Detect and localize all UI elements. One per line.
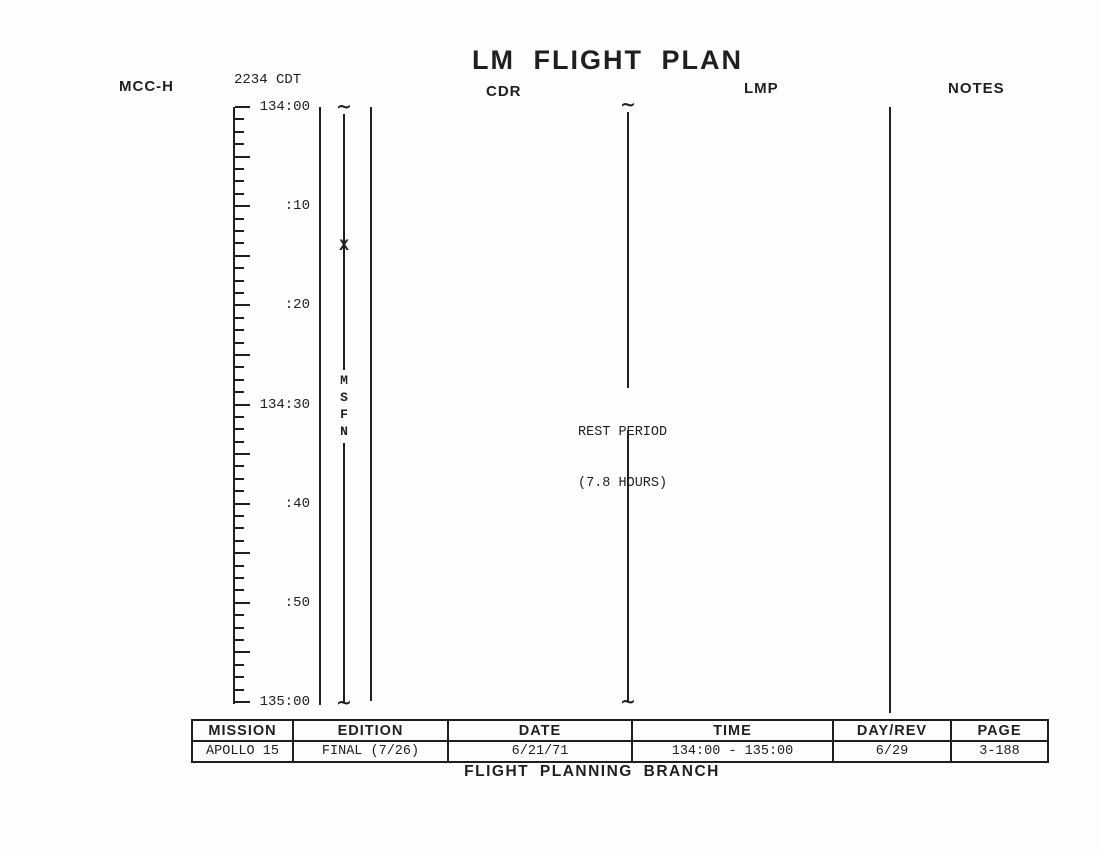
minor-tick <box>235 540 244 542</box>
column-header-notes: NOTES <box>948 80 1005 97</box>
minor-tick <box>235 180 244 182</box>
minor-tick <box>235 465 244 467</box>
time-scale-label: 134:30 <box>234 397 310 413</box>
line-break-squiggle: ~ <box>620 96 636 115</box>
footer-table-header-page: PAGE <box>951 720 1048 741</box>
minor-tick <box>235 627 244 629</box>
local-time-label: 2234 CDT <box>234 72 301 88</box>
minor-tick <box>235 218 244 220</box>
footer-table-value-dayrev: 6/29 <box>833 741 951 762</box>
line-break-squiggle: ~ <box>620 693 636 712</box>
minor-tick <box>235 391 244 393</box>
major-tick <box>235 255 250 257</box>
footer-table-value-edition: FINAL (7/26) <box>293 741 448 762</box>
msfn-coverage-line-lower <box>343 443 345 702</box>
minor-tick <box>235 168 244 170</box>
time-scale-label: :20 <box>234 297 310 313</box>
major-tick <box>235 552 250 554</box>
footer-table-header-date: DATE <box>448 720 632 741</box>
footer-table-header-row: MISSION EDITION DATE TIME DAY/REV PAGE <box>192 720 1048 741</box>
minor-tick <box>235 639 244 641</box>
msfn-column-right-line <box>370 107 372 701</box>
rest-period-duration: (7.8 HOURS) <box>578 475 667 492</box>
minor-tick <box>235 317 244 319</box>
major-tick <box>235 156 250 158</box>
minor-tick <box>235 280 244 282</box>
time-scale-label: 135:00 <box>234 694 310 710</box>
minor-tick <box>235 329 244 331</box>
page-title: LM FLIGHT PLAN <box>472 45 743 76</box>
time-scale-label: :50 <box>234 595 310 611</box>
footer-table-value-page: 3-188 <box>951 741 1048 762</box>
notes-column-line <box>889 107 891 713</box>
minor-tick <box>235 676 244 678</box>
line-break-squiggle: ~ <box>336 694 352 713</box>
crew-divider-line-upper <box>627 112 629 388</box>
minor-tick <box>235 379 244 381</box>
minor-tick <box>235 565 244 567</box>
time-scale-label: :40 <box>234 496 310 512</box>
minor-tick <box>235 242 244 244</box>
minor-tick <box>235 441 244 443</box>
column-header-lmp: LMP <box>744 80 779 97</box>
major-tick <box>235 651 250 653</box>
footer-table-header-mission: MISSION <box>192 720 293 741</box>
minor-tick <box>235 689 244 691</box>
footer-table-header-edition: EDITION <box>293 720 448 741</box>
column-header-cdr: CDR <box>486 83 522 100</box>
footer-table-value-time: 134:00 - 135:00 <box>632 741 833 762</box>
minor-tick <box>235 589 244 591</box>
minor-tick <box>235 366 244 368</box>
footer-table-header-dayrev: DAY/REV <box>833 720 951 741</box>
major-tick <box>235 453 250 455</box>
footer-table: MISSION EDITION DATE TIME DAY/REV PAGE A… <box>191 719 1049 763</box>
minor-tick <box>235 515 244 517</box>
minor-tick <box>235 428 244 430</box>
msfn-station-change-mark: X <box>339 238 349 254</box>
rest-period-annotation: REST PERIOD (7.8 HOURS) <box>578 390 667 526</box>
minor-tick <box>235 478 244 480</box>
minor-tick <box>235 193 244 195</box>
footer-table-value-date: 6/21/71 <box>448 741 632 762</box>
line-break-squiggle: ~ <box>336 98 352 117</box>
footer-table-value-mission: APOLLO 15 <box>192 741 293 762</box>
major-tick <box>235 354 250 356</box>
time-scale-label: :10 <box>234 198 310 214</box>
minor-tick <box>235 143 244 145</box>
msfn-label: MSFN <box>336 372 352 440</box>
minor-tick <box>235 230 244 232</box>
msfn-column-left-line <box>319 107 321 705</box>
minor-tick <box>235 342 244 344</box>
minor-tick <box>235 527 244 529</box>
minor-tick <box>235 664 244 666</box>
minor-tick <box>235 614 244 616</box>
footer-table-value-row: APOLLO 15 FINAL (7/26) 6/21/71 134:00 - … <box>192 741 1048 762</box>
footer-table-header-time: TIME <box>632 720 833 741</box>
minor-tick <box>235 416 244 418</box>
minor-tick <box>235 292 244 294</box>
minor-tick <box>235 577 244 579</box>
flight-plan-page: LM FLIGHT PLAN MCC-H 2234 CDT CDR LMP NO… <box>0 0 1100 850</box>
minor-tick <box>235 490 244 492</box>
minor-tick <box>235 131 244 133</box>
column-header-mcch: MCC-H <box>119 78 174 95</box>
footer-branch-label: FLIGHT PLANNING BRANCH <box>464 763 720 781</box>
minor-tick <box>235 118 244 120</box>
time-scale-label: 134:00 <box>234 99 310 115</box>
minor-tick <box>235 267 244 269</box>
rest-period-title: REST PERIOD <box>578 424 667 441</box>
